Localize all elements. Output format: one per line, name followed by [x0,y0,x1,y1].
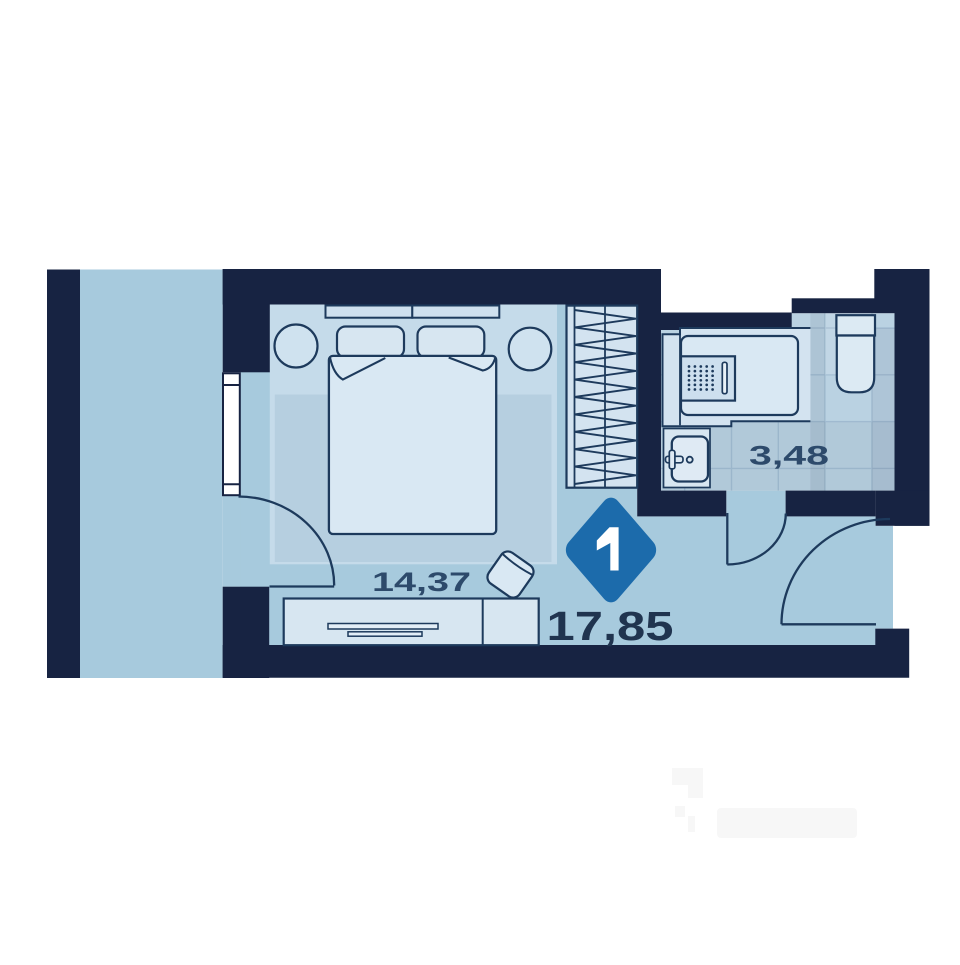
svg-text:14,37: 14,37 [372,567,471,597]
svg-text:17,85: 17,85 [547,603,674,649]
svg-text:3,48: 3,48 [749,441,829,471]
